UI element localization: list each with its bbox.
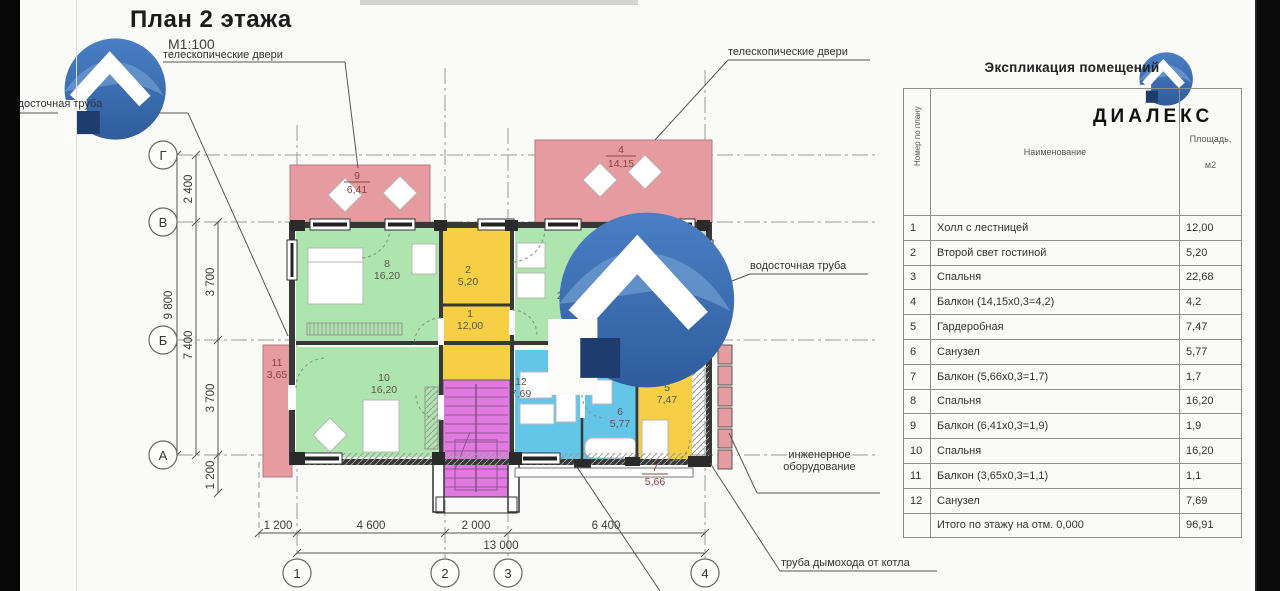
table-row: 6Санузел5,77 xyxy=(904,339,1242,364)
annotation-engineering-line1: инженерное xyxy=(757,449,882,461)
room-area-cell: 5,77 xyxy=(1180,339,1242,364)
page-title: План 2 этажа xyxy=(130,6,292,34)
table-row: 1Холл с лестницей12,00 xyxy=(904,216,1242,241)
label-6-area: 5,77 xyxy=(610,418,631,430)
label-5-area: 7,47 xyxy=(657,394,678,406)
label-10-num: 10 xyxy=(378,372,390,384)
column-header-number: Номер по плану xyxy=(904,89,931,216)
label-1-num: 1 xyxy=(467,308,473,320)
room-number-cell: 9 xyxy=(904,414,931,439)
room-name-cell: Санузел xyxy=(931,488,1180,513)
chair2-room3 xyxy=(517,273,545,298)
bed-room10 xyxy=(363,400,399,452)
annotation-drainpipe-left: водосточная труба xyxy=(6,98,102,110)
axis-1: 1 xyxy=(293,566,300,581)
table-row: 7Балкон (5,66х0,3=1,7)1,7 xyxy=(904,364,1242,389)
room-area-cell: 12,00 xyxy=(1180,216,1242,241)
room-name-cell: Гардеробная xyxy=(931,315,1180,340)
annotation-chimney: труба дымохода от котла xyxy=(781,557,910,569)
annotation-engineering-line2: оборудование xyxy=(757,461,882,473)
room-area-cell: 1,7 xyxy=(1180,364,1242,389)
label-7-num: 7 xyxy=(652,462,658,474)
label-11-area: 3,65 xyxy=(267,369,288,381)
room-number-cell: 5 xyxy=(904,315,931,340)
room-area-cell: 1,1 xyxy=(1180,463,1242,488)
annotation-telescopic-doors-right: телескопические двери xyxy=(728,46,848,58)
photo-edge-right xyxy=(1255,0,1280,591)
label-11-num: 11 xyxy=(272,357,283,369)
table-row: 5Гардеробная7,47 xyxy=(904,315,1242,340)
room-number-cell: 6 xyxy=(904,339,931,364)
label-1-area: 12,00 xyxy=(457,320,483,332)
room-number-cell: 1 xyxy=(904,216,931,241)
label-8-num: 8 xyxy=(384,258,390,270)
explication-table: Номер по плану Наименование Площадь, м2 … xyxy=(903,88,1242,538)
label-10-area: 16,20 xyxy=(371,384,397,396)
logo-wordmark: ДИАЛЕКС xyxy=(1093,106,1225,128)
room-number-cell: 12 xyxy=(904,488,931,513)
room-number-cell xyxy=(904,513,931,538)
room-number-cell: 3 xyxy=(904,265,931,290)
engineering-equipment-blocks xyxy=(718,345,732,469)
room-number-cell: 7 xyxy=(904,364,931,389)
room-area-cell: 7,69 xyxy=(1180,488,1242,513)
room-name-cell: Балкон (14,15х0,3=4,2) xyxy=(931,290,1180,315)
room-name-cell: Спальня xyxy=(931,389,1180,414)
room-name-cell: Балкон (5,66х0,3=1,7) xyxy=(931,364,1180,389)
room-2-secondlight xyxy=(443,228,511,305)
annotation-telescopic-doors-left: телескопические двери xyxy=(163,49,283,61)
table-row: 4Балкон (14,15х0,3=4,2)4,2 xyxy=(904,290,1242,315)
label-7-area: 5,66 xyxy=(645,476,666,488)
room-number-cell: 4 xyxy=(904,290,931,315)
dim-1200-bottom: 1 200 xyxy=(264,520,293,532)
room-name-cell: Балкон (3,65х0,3=1,1) xyxy=(931,463,1180,488)
axis-g: Г xyxy=(159,148,166,163)
photo-edge-left xyxy=(0,0,20,591)
axis-a: А xyxy=(159,448,168,463)
label-12-num: 12 xyxy=(515,376,527,388)
label-2-num: 2 xyxy=(465,264,471,276)
label-6-num: 6 xyxy=(617,406,623,418)
room-number-cell: 8 xyxy=(904,389,931,414)
label-4-area: 14,15 xyxy=(608,158,634,170)
room-name-cell: Холл с лестницей xyxy=(931,216,1180,241)
table-row: 10Спальня16,20 xyxy=(904,439,1242,464)
room-area-cell: 96,91 xyxy=(1180,513,1242,538)
wardrobe-room8 xyxy=(412,244,436,274)
explication-panel: Экспликация помещений Номер по плану Наи… xyxy=(903,60,1241,538)
room-name-cell: Второй свет гостиной xyxy=(931,240,1180,265)
dialex-logo-topleft xyxy=(58,38,166,144)
axis-v: В xyxy=(159,215,168,230)
room-area-cell: 4,2 xyxy=(1180,290,1242,315)
table-body: 1Холл с лестницей12,002Второй свет гости… xyxy=(904,216,1242,538)
dim-13000: 13 000 xyxy=(483,540,518,552)
dim-1200-left: 1 200 xyxy=(205,461,217,490)
photo-artifact xyxy=(360,0,638,5)
dim-9800: 9 800 xyxy=(163,291,175,320)
table-row: 12Санузел7,69 xyxy=(904,488,1242,513)
label-8-area: 16,20 xyxy=(374,270,400,282)
label-4-num: 4 xyxy=(618,144,624,156)
dim-2000: 2 000 xyxy=(462,520,491,532)
dim-3700b: 3 700 xyxy=(205,384,217,413)
room-area-cell: 1,9 xyxy=(1180,414,1242,439)
table-row: 11Балкон (3,65х0,3=1,1)1,1 xyxy=(904,463,1242,488)
room-area-cell: 16,20 xyxy=(1180,389,1242,414)
label-9-num: 9 xyxy=(354,170,360,182)
dim-7400: 7 400 xyxy=(183,331,195,360)
room-area-cell: 7,47 xyxy=(1180,315,1242,340)
room-number-cell: 11 xyxy=(904,463,931,488)
axis-3: 3 xyxy=(504,566,511,581)
table-title: Экспликация помещений xyxy=(903,60,1241,75)
room-name-cell: Спальня xyxy=(931,265,1180,290)
room-name-cell: Балкон (6,41х0,3=1,9) xyxy=(931,414,1180,439)
annotation-engineering: инженерное оборудование xyxy=(757,449,882,473)
dim-3700a: 3 700 xyxy=(205,268,217,297)
label-2-area: 5,20 xyxy=(458,276,479,288)
balcony-7-rail xyxy=(515,468,693,477)
axis-4: 4 xyxy=(701,566,708,581)
table-row: 8Спальня16,20 xyxy=(904,389,1242,414)
room-number-cell: 2 xyxy=(904,240,931,265)
room-area-cell: 16,20 xyxy=(1180,439,1242,464)
dim-2400: 2 400 xyxy=(183,175,195,204)
table-row: 9Балкон (6,41х0,3=1,9)1,9 xyxy=(904,414,1242,439)
table-row: 3Спальня22,68 xyxy=(904,265,1242,290)
label-12-area: 7,69 xyxy=(511,388,532,400)
axis-2: 2 xyxy=(441,566,448,581)
room-name-cell: Итого по этажу на отм. 0,000 xyxy=(931,513,1180,538)
label-9-area: 6,41 xyxy=(347,184,368,196)
paper-edge xyxy=(76,0,77,591)
dim-4600: 4 600 xyxy=(357,520,386,532)
room-name-cell: Спальня xyxy=(931,439,1180,464)
table-row: Итого по этажу на отм. 0,00096,91 xyxy=(904,513,1242,538)
table-row: 2Второй свет гостиной5,20 xyxy=(904,240,1242,265)
sink-room12 xyxy=(520,404,554,424)
room-number-cell: 10 xyxy=(904,439,931,464)
axis-b: Б xyxy=(159,333,168,348)
annotation-drainpipe-right: водосточная труба xyxy=(750,260,846,272)
room-area-cell: 22,68 xyxy=(1180,265,1242,290)
room-area-cell: 5,20 xyxy=(1180,240,1242,265)
room-name-cell: Санузел xyxy=(931,339,1180,364)
